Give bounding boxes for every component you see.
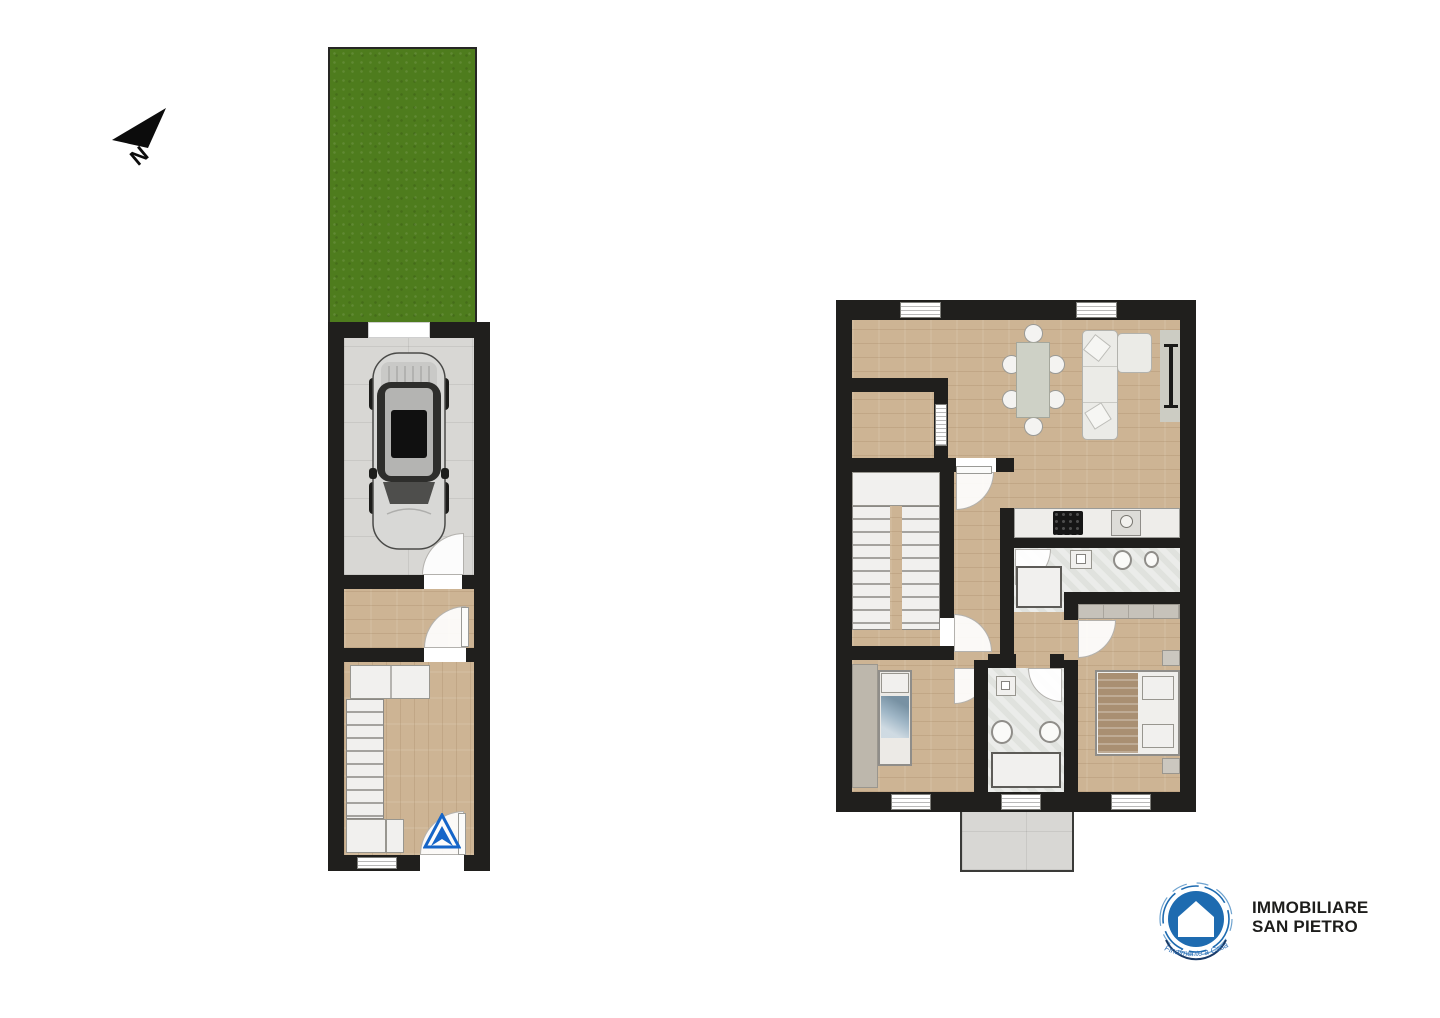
- bidet: [1039, 721, 1061, 743]
- garden: [328, 47, 477, 324]
- wardrobe: [852, 664, 878, 788]
- cooktop: [1053, 511, 1083, 535]
- shower: [991, 752, 1061, 788]
- wall: [328, 322, 344, 871]
- entrance-opening: [420, 855, 464, 871]
- bed-blanket: [1098, 673, 1138, 753]
- wall: [988, 654, 1016, 668]
- nightstand: [1162, 650, 1180, 666]
- window: [1076, 302, 1117, 318]
- cabinet: [346, 819, 386, 853]
- nightstand: [1162, 758, 1180, 774]
- agency-name-line1: IMMOBILIARE: [1252, 898, 1372, 917]
- stair-landing: [852, 472, 940, 506]
- agency-name-line2: SAN PIETRO: [1252, 917, 1372, 936]
- window: [357, 857, 397, 869]
- kitchen-sink-basin: [1120, 515, 1133, 528]
- floor-plan-page: N: [0, 0, 1440, 1018]
- staircase: [346, 699, 384, 819]
- pillow: [1142, 676, 1174, 700]
- chair: [1024, 417, 1043, 436]
- bathroom-sink-basin: [1001, 681, 1010, 690]
- wall: [1064, 660, 1078, 792]
- wall: [1000, 508, 1014, 660]
- wall: [344, 648, 424, 662]
- wardrobe: [1078, 604, 1180, 619]
- wall: [836, 300, 852, 812]
- radiator-icon: [1169, 344, 1173, 408]
- wall: [328, 855, 490, 871]
- radiator-icon: [1164, 405, 1178, 408]
- first-floor-plan: [836, 300, 1196, 874]
- wall: [1000, 538, 1196, 548]
- wardrobe: [350, 665, 430, 699]
- toilet: [1113, 550, 1132, 570]
- wall: [836, 300, 1196, 320]
- stair-divider: [890, 506, 902, 630]
- wall: [1180, 300, 1196, 812]
- window: [1001, 794, 1041, 810]
- shower: [1016, 566, 1062, 608]
- compass-north-arrow: N: [104, 104, 174, 182]
- bed-blanket: [881, 696, 909, 738]
- bidet: [1144, 551, 1159, 568]
- door-leaf: [956, 466, 992, 474]
- pillow: [1142, 724, 1174, 748]
- dining-table: [1016, 342, 1050, 418]
- wall: [466, 648, 474, 662]
- bathroom-sink-basin: [1076, 554, 1086, 564]
- ground-floor-plan: [328, 47, 490, 871]
- agency-logo-icon: Finalmente a Casa: [1156, 882, 1248, 966]
- wall: [836, 646, 954, 660]
- door-leaf: [461, 607, 469, 647]
- wall: [474, 322, 490, 871]
- internal-window: [935, 404, 947, 446]
- balcony: [960, 812, 1074, 872]
- wall: [1064, 604, 1078, 620]
- window: [1111, 794, 1151, 810]
- toilet: [991, 720, 1013, 744]
- chair: [1024, 324, 1043, 343]
- radiator-icon: [1164, 344, 1178, 347]
- wall: [1050, 654, 1064, 668]
- car: [369, 350, 449, 552]
- garage-door-opening: [368, 322, 430, 338]
- wall: [836, 378, 948, 392]
- window: [891, 794, 931, 810]
- wall: [462, 575, 474, 589]
- wall: [344, 575, 424, 589]
- kitchen-counter: [1014, 508, 1180, 538]
- compass-arrow-icon: [112, 108, 166, 148]
- wall: [1064, 592, 1196, 604]
- sofa-chaise: [1117, 333, 1152, 373]
- cabinet: [386, 819, 404, 853]
- wall: [974, 660, 988, 792]
- entrance-arrow-icon: [423, 813, 461, 853]
- pillow: [881, 673, 909, 693]
- window: [900, 302, 941, 318]
- agency-name: IMMOBILIARE SAN PIETRO: [1252, 898, 1372, 936]
